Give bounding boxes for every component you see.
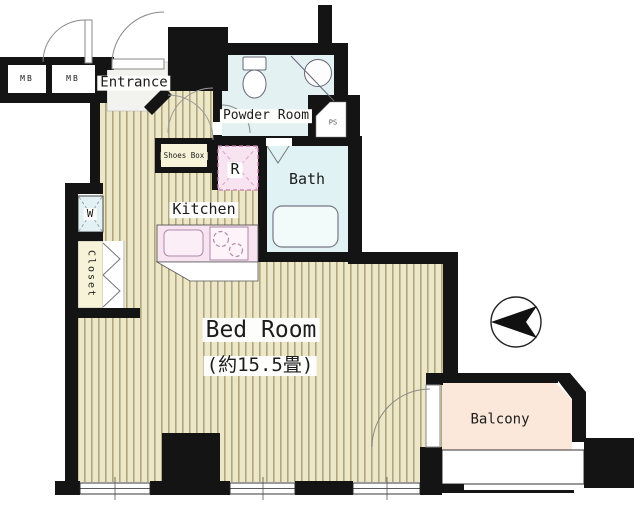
stove-icon [210, 227, 248, 260]
toilet-tank-icon [243, 57, 266, 70]
label-mb1: MB [20, 75, 34, 83]
label-entrance: Entrance [97, 76, 170, 91]
label-washer: W [84, 208, 97, 220]
label-bedroom-name: Bed Room [203, 318, 320, 342]
closet-door-zone [103, 241, 125, 308]
label-shoes-box: Shoes Box [161, 152, 208, 160]
label-bath: Bath [286, 172, 328, 188]
floor-plan: MB MB Entrance Powder Room Shoes Box PS … [0, 0, 640, 505]
balcony-railing [442, 450, 584, 484]
label-kitchen: Kitchen [169, 202, 238, 218]
label-refrigerator: R [227, 162, 242, 178]
toilet-bowl-icon [243, 70, 266, 98]
label-pipe-space: PS [329, 119, 337, 126]
powder-door-gap [213, 122, 222, 135]
bathtub-icon [273, 206, 338, 247]
compass-icon [491, 297, 541, 347]
label-balcony: Balcony [467, 413, 532, 428]
basin-icon [305, 60, 332, 87]
kitchen-sink-icon [164, 230, 203, 256]
label-powder-room: Powder Room [220, 109, 312, 123]
label-bedroom-size: (約15.5畳) [204, 356, 317, 376]
bath-door-gap [266, 138, 292, 146]
label-mb2: MB [66, 75, 80, 83]
label-closet: Closet [85, 250, 96, 298]
